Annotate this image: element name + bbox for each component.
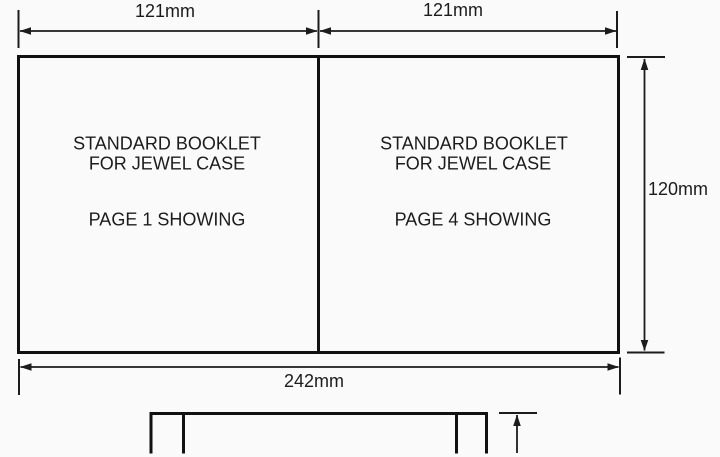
svg-text:121mm: 121mm xyxy=(423,0,483,20)
svg-text:242mm: 242mm xyxy=(284,371,344,391)
svg-text:PAGE 4 SHOWING: PAGE 4 SHOWING xyxy=(395,210,552,230)
svg-text:121mm: 121mm xyxy=(135,1,195,21)
svg-text:STANDARD BOOKLET: STANDARD BOOKLET xyxy=(380,134,568,154)
svg-text:120mm: 120mm xyxy=(648,179,708,199)
svg-text:FOR JEWEL CASE: FOR JEWEL CASE xyxy=(395,154,551,174)
svg-text:PAGE 1 SHOWING: PAGE 1 SHOWING xyxy=(89,210,246,230)
svg-text:FOR JEWEL CASE: FOR JEWEL CASE xyxy=(89,154,245,174)
svg-text:STANDARD BOOKLET: STANDARD BOOKLET xyxy=(73,134,261,154)
